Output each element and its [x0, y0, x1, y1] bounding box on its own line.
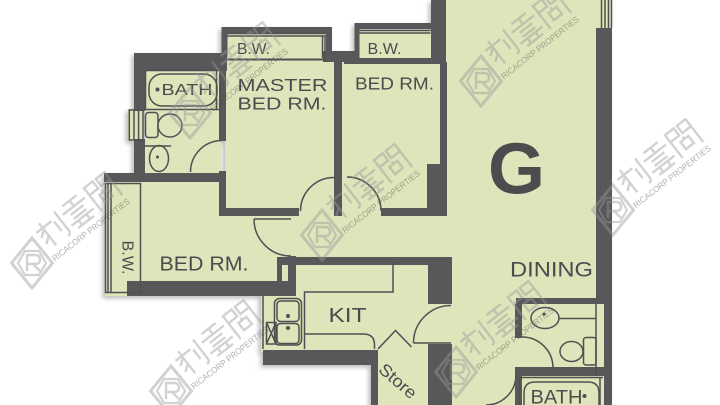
svg-text:BED RM.: BED RM. — [160, 254, 249, 276]
svg-text:DINING: DINING — [510, 259, 593, 282]
svg-text:KIT: KIT — [329, 305, 367, 327]
svg-text:BATH: BATH — [531, 388, 583, 405]
svg-text:BED RM.: BED RM. — [238, 94, 327, 114]
svg-text:BED RM.: BED RM. — [355, 74, 434, 94]
svg-text:B.W.: B.W. — [119, 241, 136, 275]
svg-text:G: G — [488, 130, 545, 210]
svg-text:B.W.: B.W. — [368, 41, 402, 58]
